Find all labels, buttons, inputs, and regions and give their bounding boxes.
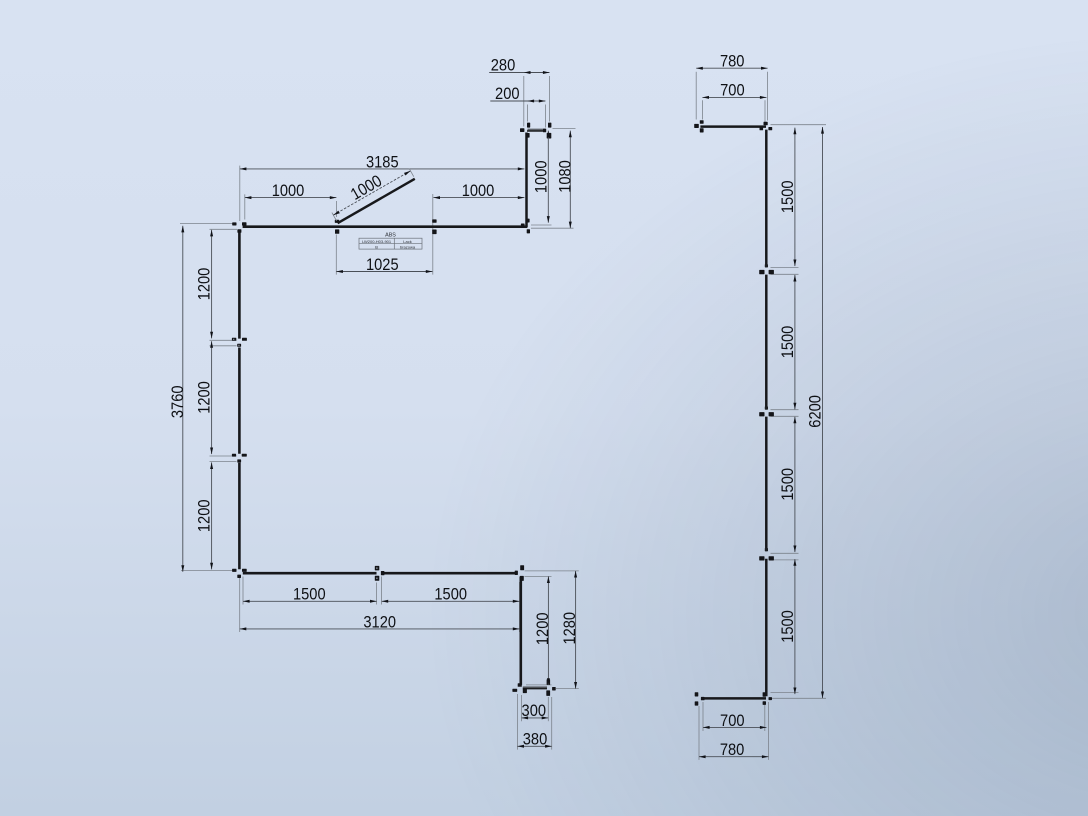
svg-text:300: 300 [522, 701, 547, 720]
svg-text:1080: 1080 [555, 160, 574, 193]
svg-text:3185: 3185 [366, 152, 399, 171]
svg-text:1000: 1000 [532, 161, 551, 194]
svg-text:380: 380 [523, 730, 548, 749]
svg-text:1025: 1025 [366, 255, 399, 274]
svg-text:780: 780 [720, 51, 745, 70]
svg-text:ABS: ABS [385, 232, 396, 238]
svg-text:1500: 1500 [434, 584, 467, 603]
svg-text:1500: 1500 [778, 610, 797, 643]
svg-text:3120: 3120 [363, 612, 396, 631]
svg-text:700: 700 [720, 711, 745, 730]
svg-text:1000: 1000 [272, 181, 305, 200]
svg-text:1200: 1200 [195, 381, 214, 414]
svg-text:780: 780 [720, 740, 745, 759]
svg-text:1500: 1500 [778, 468, 797, 501]
svg-text:200: 200 [495, 84, 520, 103]
svg-text:1200: 1200 [195, 268, 214, 301]
svg-text:700: 700 [720, 81, 745, 100]
svg-text:1200: 1200 [533, 613, 552, 646]
svg-text:1000: 1000 [462, 181, 495, 200]
svg-text:1200: 1200 [195, 500, 214, 533]
svg-text:1500: 1500 [778, 181, 797, 214]
svg-text:6200: 6200 [806, 395, 825, 428]
svg-text:1500: 1500 [778, 326, 797, 359]
svg-text:Lack: Lack [403, 239, 411, 244]
svg-text:B: B [375, 244, 378, 249]
svg-text:280: 280 [491, 56, 516, 75]
svg-text:1500: 1500 [293, 585, 326, 604]
svg-text:3760: 3760 [168, 386, 187, 419]
svg-text:LW200-H03-901: LW200-H03-901 [362, 239, 392, 244]
svg-text:brazowa: brazowa [400, 244, 416, 249]
svg-text:1280: 1280 [560, 612, 579, 645]
